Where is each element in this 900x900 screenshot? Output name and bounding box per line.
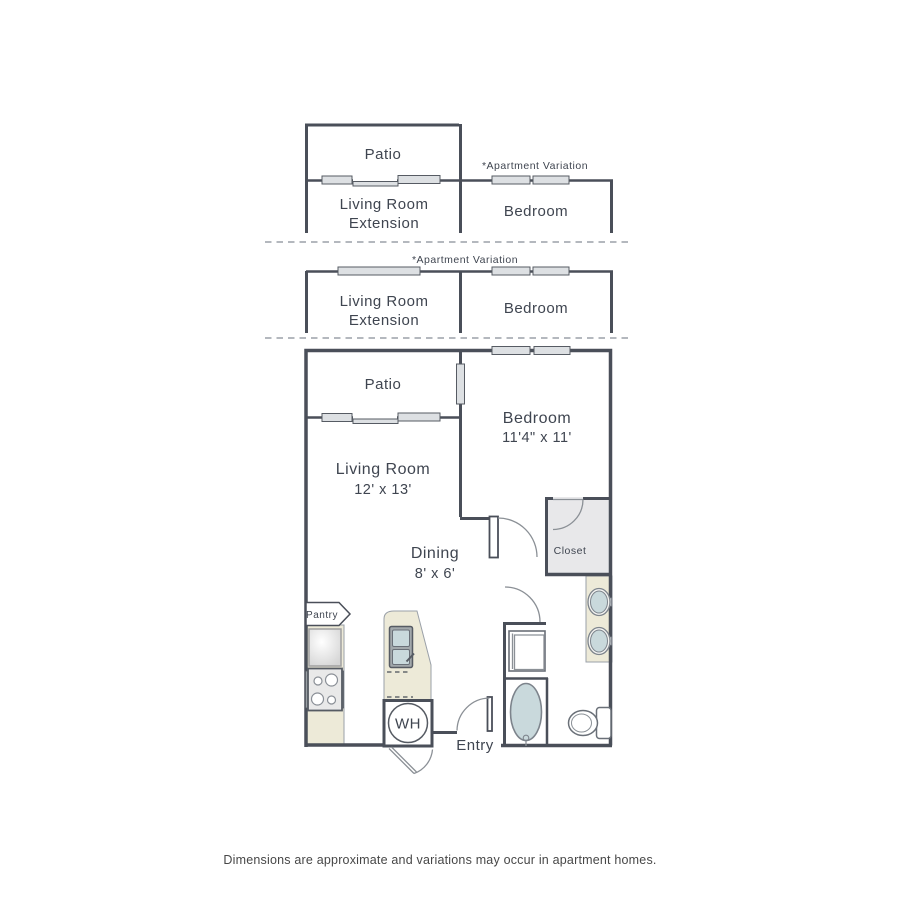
- patio-label: Patio: [365, 376, 402, 393]
- dining-dimensions: 8' x 6': [415, 566, 455, 582]
- disclaimer-text: Dimensions are approximate and variation…: [223, 853, 656, 867]
- door-jamb: [490, 517, 499, 558]
- entry: Entry: [433, 697, 494, 754]
- entry-door-arc: [457, 698, 490, 731]
- refrigerator: [309, 629, 341, 666]
- window: [492, 176, 530, 184]
- floor-plan-svg: Patio *Apartment Variation Living Room E…: [0, 0, 900, 900]
- sink-basin: [393, 650, 410, 665]
- window: [492, 267, 530, 275]
- window: [533, 267, 569, 275]
- sliding-door-panel: [353, 419, 398, 424]
- window: [534, 347, 570, 355]
- bedroom-label: Bedroom: [504, 300, 568, 317]
- closet-label: Closet: [554, 545, 587, 557]
- variation-note: *Apartment Variation: [482, 160, 588, 172]
- bedroom-dimensions: 11'4" x 11': [502, 430, 572, 446]
- window: [457, 364, 465, 404]
- bedroom-label: Bedroom: [504, 203, 568, 220]
- living-room-dimensions: 12' x 13': [354, 482, 412, 498]
- bathroom-cabinet: [509, 631, 545, 671]
- window: [492, 347, 530, 355]
- door-swing-arc: [498, 518, 537, 557]
- bathroom-door-arc: [505, 587, 540, 622]
- wh-door-leaf: [389, 747, 417, 774]
- entry-label: Entry: [456, 737, 494, 754]
- water-heater-closet: WH: [384, 701, 433, 774]
- window: [322, 176, 352, 184]
- stove-top: [308, 669, 342, 711]
- window: [398, 176, 440, 184]
- living-room-extension-label: Living Room: [340, 293, 429, 310]
- toilet: [569, 708, 612, 739]
- tub-basin: [511, 684, 542, 741]
- variation-section-1: Patio *Apartment Variation Living Room E…: [306, 124, 613, 233]
- living-room-label: Living Room: [336, 461, 430, 478]
- sliding-door-panel: [353, 182, 398, 187]
- sink-basin: [393, 630, 410, 647]
- pantry-label: Pantry: [306, 610, 338, 621]
- burner: [328, 696, 336, 704]
- stove: [306, 669, 344, 711]
- window: [322, 414, 352, 422]
- wh-door-arc: [414, 750, 433, 774]
- window: [338, 267, 420, 275]
- living-room-extension-label: Living Room: [340, 196, 429, 213]
- variation-note: *Apartment Variation: [412, 254, 518, 266]
- window: [533, 176, 569, 184]
- sink-basin: [591, 591, 608, 613]
- toilet-tank: [597, 708, 612, 739]
- bathroom: [503, 587, 612, 746]
- bedroom-label: Bedroom: [503, 410, 571, 427]
- bedroom-door: [460, 517, 537, 558]
- patio-label: Patio: [365, 146, 402, 163]
- closet-floor: [546, 497, 611, 574]
- entry-door-leaf: [488, 697, 493, 731]
- main-floor-plan: Closet: [306, 347, 613, 774]
- water-heater-label: WH: [395, 716, 421, 733]
- bathtub: [511, 684, 542, 747]
- living-room-extension-label2: Extension: [349, 312, 419, 329]
- window: [398, 413, 440, 421]
- floor-plan-page: Patio *Apartment Variation Living Room E…: [0, 0, 900, 900]
- burner: [326, 674, 338, 686]
- living-room-extension-label2: Extension: [349, 215, 419, 232]
- burner: [312, 693, 324, 705]
- variation-section-2: *Apartment Variation Living Room Extensi…: [306, 254, 613, 333]
- dining-label: Dining: [411, 545, 459, 562]
- kitchen-sink: [390, 627, 415, 668]
- burner: [314, 677, 322, 685]
- sink-basin: [591, 630, 608, 652]
